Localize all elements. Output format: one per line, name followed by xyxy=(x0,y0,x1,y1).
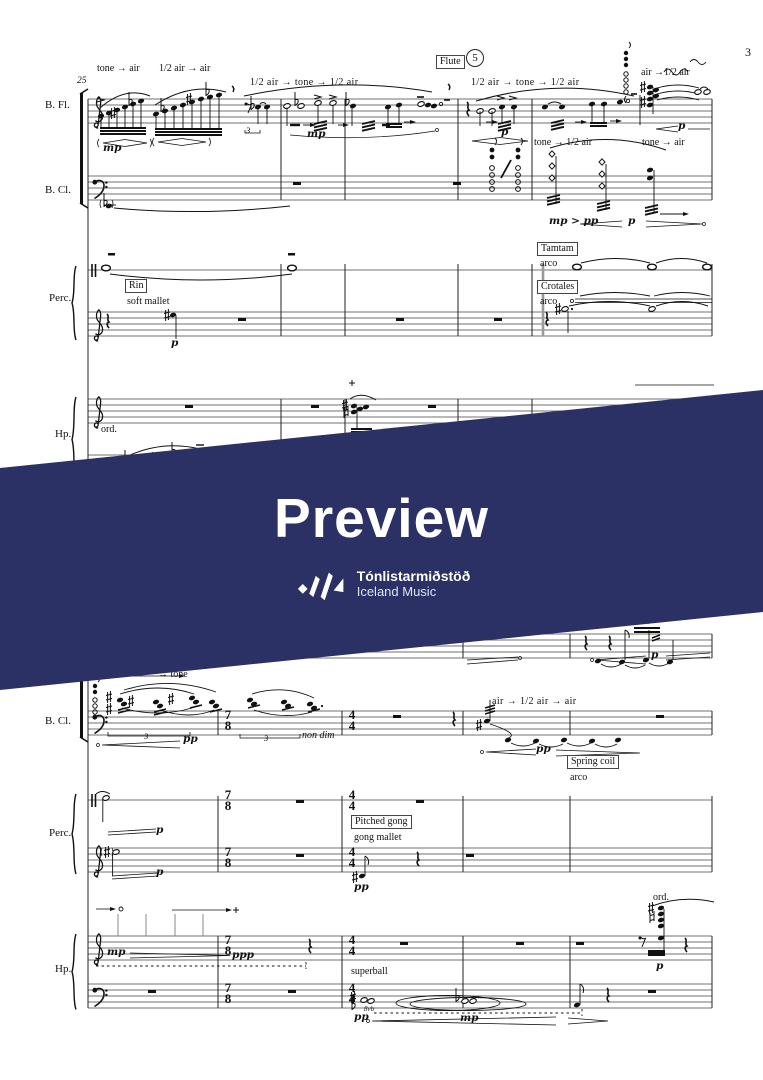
instruction-gong-mallet: gong mallet xyxy=(354,832,402,843)
instruction-tamtam: Tamtam xyxy=(537,242,578,256)
instruction-arco: arco xyxy=(570,772,587,783)
technique-label: tone → air xyxy=(97,63,140,74)
instruction-spring-coil: Spring coil xyxy=(567,755,619,769)
technique-label: air → 1/2 air → air xyxy=(492,696,577,707)
time-signature-7-8: 78 xyxy=(220,934,236,956)
instruction-non-dim: non dim xyxy=(302,730,335,741)
time-signature-4-4: 44 xyxy=(344,982,360,1004)
dynamic-marking: pp xyxy=(354,881,369,893)
dynamic-marking: pp xyxy=(183,733,198,745)
instruction-soft-mallet: soft mallet xyxy=(127,296,170,307)
octave-marking: 8vb xyxy=(364,1005,374,1013)
dynamic-marking: mp xyxy=(307,128,325,140)
time-signature-4-4: 44 xyxy=(344,934,360,956)
instrument-label-bcl2: B. Cl. xyxy=(45,715,71,727)
dynamic-marking: mp xyxy=(103,142,121,154)
time-signature-7-8: 78 xyxy=(220,789,236,811)
time-signature-7-8: 78 xyxy=(220,982,236,1004)
flute-fingering-icon xyxy=(624,42,631,103)
dynamic-marking: p xyxy=(171,337,178,349)
flute-fingering-icon xyxy=(490,138,523,191)
instruction-arco: arco xyxy=(540,296,557,307)
technique-label: air →1/2 air xyxy=(641,67,690,78)
flute-fingering-icon xyxy=(93,677,100,714)
instruction-ord: ord. xyxy=(653,892,669,903)
bcl2-music xyxy=(93,674,664,756)
technique-label: 1/2 air → air xyxy=(159,63,210,74)
rehearsal-instrument: Flute xyxy=(436,55,465,69)
dynamic-marking: p xyxy=(501,126,508,138)
publisher-logo: Tónlistarmiðstöð Iceland Music xyxy=(0,566,763,602)
dynamic-marking: p xyxy=(628,215,635,227)
instrument-label-hp: Hp. xyxy=(55,428,71,440)
dynamic-marking: mp > pp xyxy=(549,215,598,227)
dynamic-marking: p xyxy=(678,120,685,132)
tuplet-number: 3 xyxy=(264,733,268,743)
dynamic-marking: p xyxy=(156,866,163,878)
perc1-music xyxy=(102,253,712,339)
measure-number: 25 xyxy=(77,76,87,86)
perc2-music xyxy=(96,792,474,884)
time-signature-4-4: 44 xyxy=(344,789,360,811)
instruction-arco: arco xyxy=(540,258,557,269)
bfl1-music xyxy=(97,42,711,147)
rehearsal-number: 5 xyxy=(466,49,484,67)
technique-label: 1/2 air → tone → 1/2 air xyxy=(250,77,358,88)
time-signature-7-8: 78 xyxy=(220,846,236,868)
instrument-label-perc2: Perc. xyxy=(49,827,71,839)
dynamic-marking: p xyxy=(651,649,658,661)
time-signature-7-8: 78 xyxy=(220,709,236,731)
instruction-superball: superball xyxy=(351,966,388,977)
tuplet-number: 3 xyxy=(246,125,250,135)
technique-label: tone → air xyxy=(642,137,685,148)
iceland-music-logo-icon xyxy=(293,566,345,602)
dynamic-marking: pp xyxy=(536,743,551,755)
dynamic-marking: p xyxy=(656,960,663,972)
instrument-label-perc: Perc. xyxy=(49,292,71,304)
dynamic-marking: mp xyxy=(460,1012,478,1024)
preview-title: Preview xyxy=(0,486,763,550)
time-signature-4-4: 44 xyxy=(344,709,360,731)
technique-label: tone → 1/2 air xyxy=(534,137,592,148)
bcl1-music xyxy=(100,139,706,227)
instruction-pitched-gong: Pitched gong xyxy=(351,815,412,829)
tuplet-number: 3 xyxy=(144,731,148,741)
instruction-rin: Rin xyxy=(125,279,147,293)
technique-label: 1/2 air → tone → 1/2 air xyxy=(471,77,579,88)
dynamic-marking: mp xyxy=(107,946,125,958)
instruction-crotales: Crotales xyxy=(537,280,578,294)
instruction-ord: ord. xyxy=(101,424,117,435)
publisher-name: Tónlistarmiðstöð xyxy=(357,569,471,584)
time-signature-4-4: 44 xyxy=(344,846,360,868)
instrument-label-hp2: Hp. xyxy=(55,963,71,975)
hp2-music xyxy=(96,899,714,1025)
page-number: 3 xyxy=(745,45,751,60)
dynamic-marking: p xyxy=(156,824,163,836)
instrument-label-bcl: B. Cl. xyxy=(45,184,71,196)
publisher-subtitle: Iceland Music xyxy=(357,584,471,599)
instrument-label-bfl: B. Fl. xyxy=(45,99,70,111)
sheet-music-page: 3 25 Flute 5 tone → air 1/2 air → air 1/… xyxy=(0,0,763,1080)
